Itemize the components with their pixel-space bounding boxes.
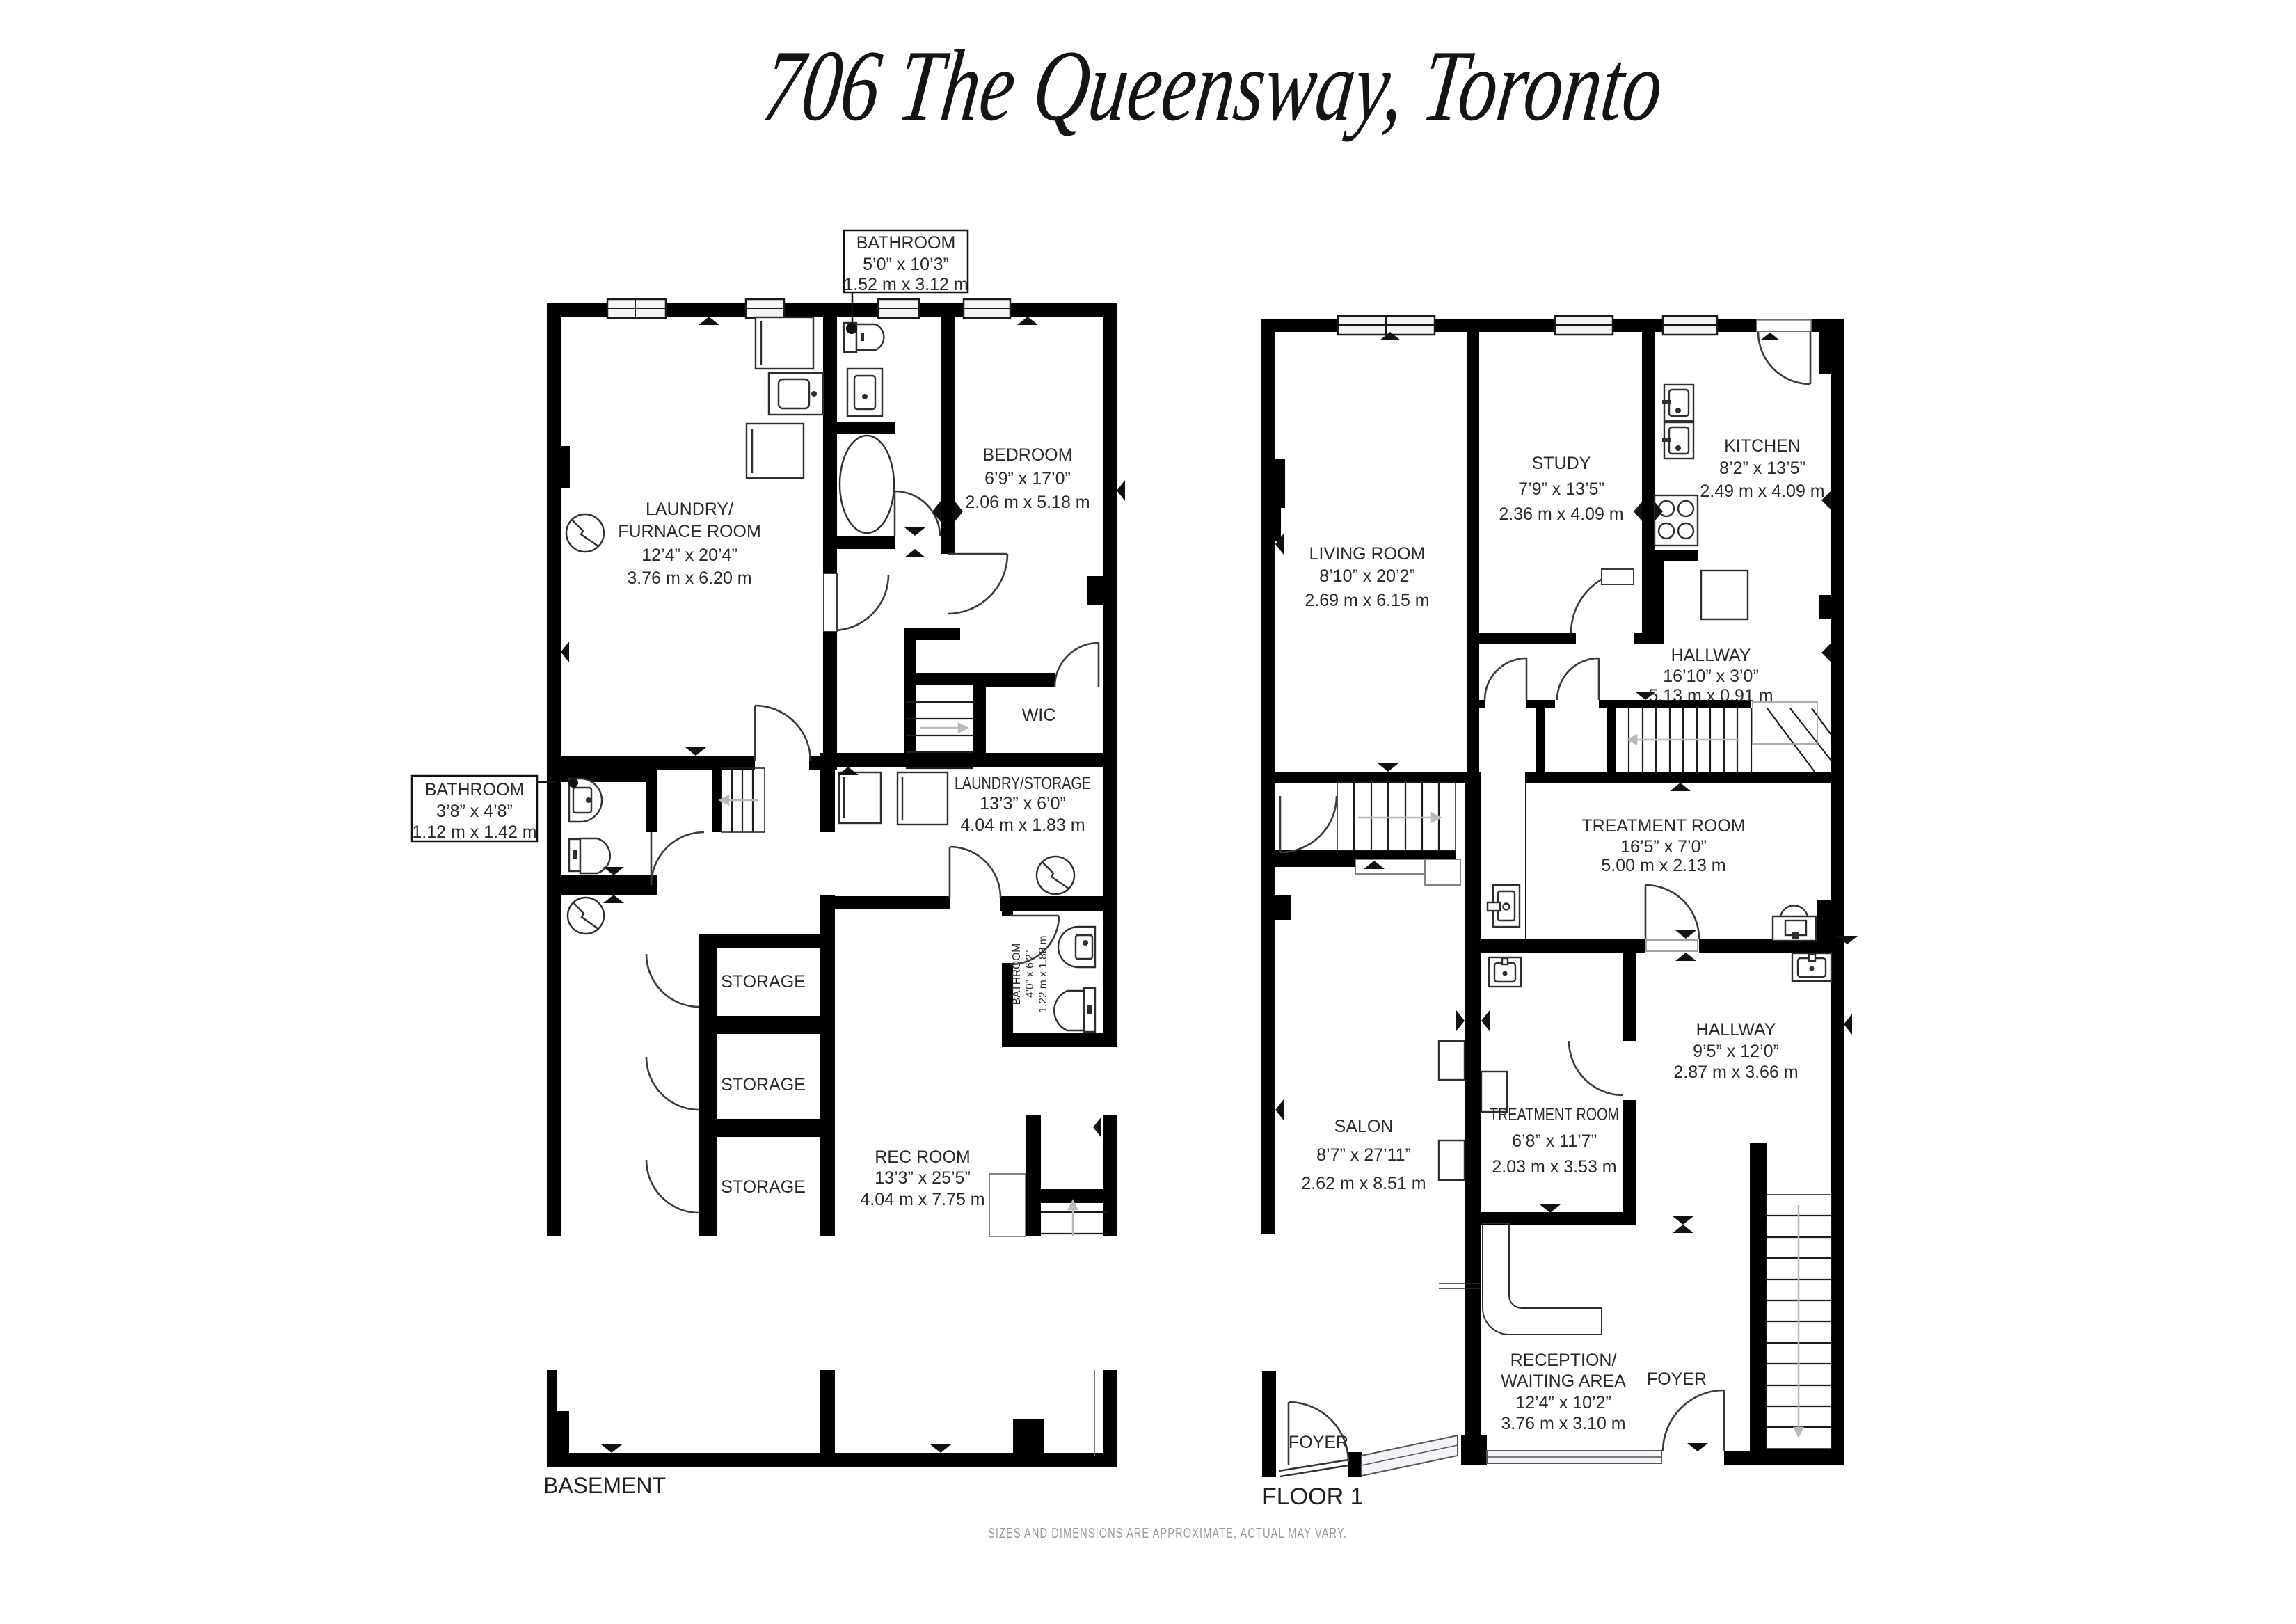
svg-text:6’8” x 11’7”: 6’8” x 11’7” — [1512, 1131, 1597, 1151]
svg-text:TREATMENT ROOM: TREATMENT ROOM — [1581, 816, 1745, 836]
svg-text:12’4” x 10’2”: 12’4” x 10’2” — [1515, 1393, 1611, 1412]
svg-text:13’3” x 6’0”: 13’3” x 6’0” — [980, 794, 1066, 813]
svg-text:8’7” x 27’11”: 8’7” x 27’11” — [1316, 1145, 1411, 1165]
svg-text:LAUNDRY/: LAUNDRY/ — [646, 500, 733, 519]
svg-text:6’9” x 17’0”: 6’9” x 17’0” — [984, 469, 1071, 488]
svg-text:4.04 m x 1.83 m: 4.04 m x 1.83 m — [960, 815, 1085, 835]
svg-text:2.36 m x 4.09 m: 2.36 m x 4.09 m — [1499, 504, 1623, 524]
svg-text:2.03 m x 3.53 m: 2.03 m x 3.53 m — [1492, 1157, 1616, 1177]
svg-text:2.62 m x 8.51 m: 2.62 m x 8.51 m — [1301, 1174, 1426, 1193]
svg-text:BEDROOM: BEDROOM — [982, 445, 1072, 465]
svg-text:FURNACE ROOM: FURNACE ROOM — [618, 522, 761, 541]
svg-text:7’9” x 13’5”: 7’9” x 13’5” — [1518, 479, 1604, 499]
svg-text:WIC: WIC — [1022, 706, 1056, 725]
svg-text:12’4” x 20’4”: 12’4” x 20’4” — [641, 546, 738, 565]
svg-text:STUDY: STUDY — [1532, 454, 1591, 473]
svg-text:LAUNDRY/STORAGE: LAUNDRY/STORAGE — [955, 774, 1091, 793]
svg-text:FOYER: FOYER — [1289, 1433, 1348, 1452]
svg-text:FLOOR 1: FLOOR 1 — [1262, 1483, 1363, 1510]
svg-text:3.76 m x 6.20 m: 3.76 m x 6.20 m — [627, 568, 751, 588]
svg-text:2.87 m x 3.66 m: 2.87 m x 3.66 m — [1673, 1062, 1798, 1082]
svg-text:3.76 m x 3.10 m: 3.76 m x 3.10 m — [1501, 1414, 1625, 1433]
svg-text:8’2” x 13’5”: 8’2” x 13’5” — [1719, 459, 1805, 478]
svg-text:TREATMENT ROOM: TREATMENT ROOM — [1490, 1105, 1619, 1124]
svg-text:2.49 m x 4.09 m: 2.49 m x 4.09 m — [1700, 481, 1824, 501]
svg-text:8’10” x 20’2”: 8’10” x 20’2” — [1319, 566, 1415, 586]
svg-text:1.52 m x 3.12 m: 1.52 m x 3.12 m — [843, 275, 968, 294]
svg-text:BATHROOM: BATHROOM — [856, 233, 956, 253]
svg-text:16’5” x 7’0”: 16’5” x 7’0” — [1620, 837, 1707, 857]
svg-text:SIZES AND DIMENSIONS ARE APPRO: SIZES AND DIMENSIONS ARE APPROXIMATE, AC… — [988, 1526, 1347, 1541]
svg-text:STORAGE: STORAGE — [721, 972, 806, 992]
svg-text:FOYER: FOYER — [1647, 1369, 1707, 1389]
svg-text:5’0” x 10’3”: 5’0” x 10’3” — [863, 255, 949, 274]
svg-text:16’10” x 3’0”: 16’10” x 3’0” — [1663, 667, 1759, 686]
svg-text:RECEPTION/: RECEPTION/ — [1510, 1351, 1617, 1370]
svg-text:HALLWAY: HALLWAY — [1696, 1020, 1776, 1040]
svg-text:KITCHEN: KITCHEN — [1724, 436, 1801, 456]
svg-text:REC ROOM: REC ROOM — [875, 1147, 971, 1167]
svg-text:STORAGE: STORAGE — [721, 1075, 806, 1094]
svg-text:STORAGE: STORAGE — [721, 1177, 806, 1197]
svg-text:4’0” x 6’2”: 4’0” x 6’2” — [1024, 950, 1036, 998]
svg-text:BATHROOM: BATHROOM — [1011, 944, 1023, 1005]
svg-text:2.69 m x 6.15 m: 2.69 m x 6.15 m — [1305, 591, 1429, 610]
svg-text:BATHROOM: BATHROOM — [425, 780, 525, 799]
svg-text:5.00 m x 2.13 m: 5.00 m x 2.13 m — [1601, 856, 1725, 875]
svg-text:5.13 m x 0.91 m: 5.13 m x 0.91 m — [1648, 686, 1773, 706]
svg-text:SALON: SALON — [1334, 1117, 1394, 1136]
svg-text:1.12 m x 1.42 m: 1.12 m x 1.42 m — [412, 822, 536, 842]
svg-text:HALLWAY: HALLWAY — [1671, 646, 1751, 665]
svg-text:9’5” x 12’0”: 9’5” x 12’0” — [1693, 1042, 1779, 1061]
svg-text:2.06 m x 5.18 m: 2.06 m x 5.18 m — [965, 493, 1090, 512]
svg-text:LIVING ROOM: LIVING ROOM — [1309, 544, 1426, 564]
svg-text:1.22 m x 1.88 m: 1.22 m x 1.88 m — [1037, 935, 1049, 1012]
svg-text:4.04 m x 7.75 m: 4.04 m x 7.75 m — [860, 1190, 984, 1209]
svg-text:BASEMENT: BASEMENT — [543, 1473, 666, 1498]
svg-text:13’3” x 25’5”: 13’3” x 25’5” — [875, 1168, 971, 1188]
svg-text:706 The Queensway, Toronto: 706 The Queensway, Toronto — [758, 29, 1669, 141]
svg-text:WAITING AREA: WAITING AREA — [1501, 1371, 1626, 1391]
svg-text:3’8” x 4’8”: 3’8” x 4’8” — [436, 802, 513, 821]
